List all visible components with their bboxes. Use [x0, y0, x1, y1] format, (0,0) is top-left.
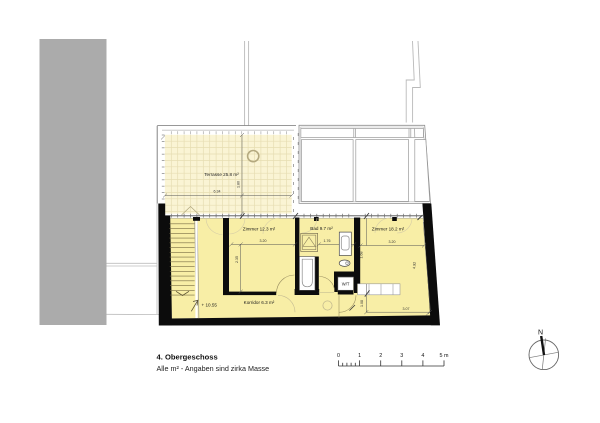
svg-text:2.35: 2.35 — [235, 256, 239, 263]
svg-text:4.92: 4.92 — [412, 262, 417, 269]
svg-text:Terrasse 25.8 m²: Terrasse 25.8 m² — [204, 172, 239, 177]
svg-text:Korridor 6.3 m²: Korridor 6.3 m² — [244, 300, 275, 305]
svg-text:Bad 9.7 m²: Bad 9.7 m² — [310, 226, 333, 231]
svg-text:5 m: 5 m — [440, 353, 449, 359]
svg-text:Zimmer 18.2 m²: Zimmer 18.2 m² — [372, 227, 405, 232]
svg-text:2: 2 — [379, 353, 382, 359]
svg-text:1: 1 — [358, 353, 361, 359]
svg-text:0: 0 — [337, 353, 340, 359]
svg-text:1.80: 1.80 — [236, 181, 240, 188]
svg-text:3.07: 3.07 — [403, 307, 410, 311]
svg-text:3.20: 3.20 — [389, 240, 396, 244]
svg-text:1.08: 1.08 — [360, 300, 364, 307]
svg-text:Zimmer 12.3 m²: Zimmer 12.3 m² — [243, 227, 276, 232]
svg-text:1.68: 1.68 — [360, 252, 364, 259]
svg-text:+ 10.55: + 10.55 — [202, 302, 218, 307]
svg-text:3: 3 — [400, 353, 403, 359]
svg-text:3.20: 3.20 — [260, 239, 267, 243]
svg-text:6.34: 6.34 — [214, 190, 221, 194]
svg-text:4. Obergeschoss: 4. Obergeschoss — [157, 353, 218, 362]
svg-text:Alle m² - Angaben sind zirka M: Alle m² - Angaben sind zirka Masse — [157, 364, 270, 373]
svg-text:4: 4 — [421, 353, 424, 359]
svg-text:W/T: W/T — [342, 281, 350, 286]
svg-text:1.76: 1.76 — [324, 239, 331, 243]
svg-text:N: N — [538, 330, 543, 337]
